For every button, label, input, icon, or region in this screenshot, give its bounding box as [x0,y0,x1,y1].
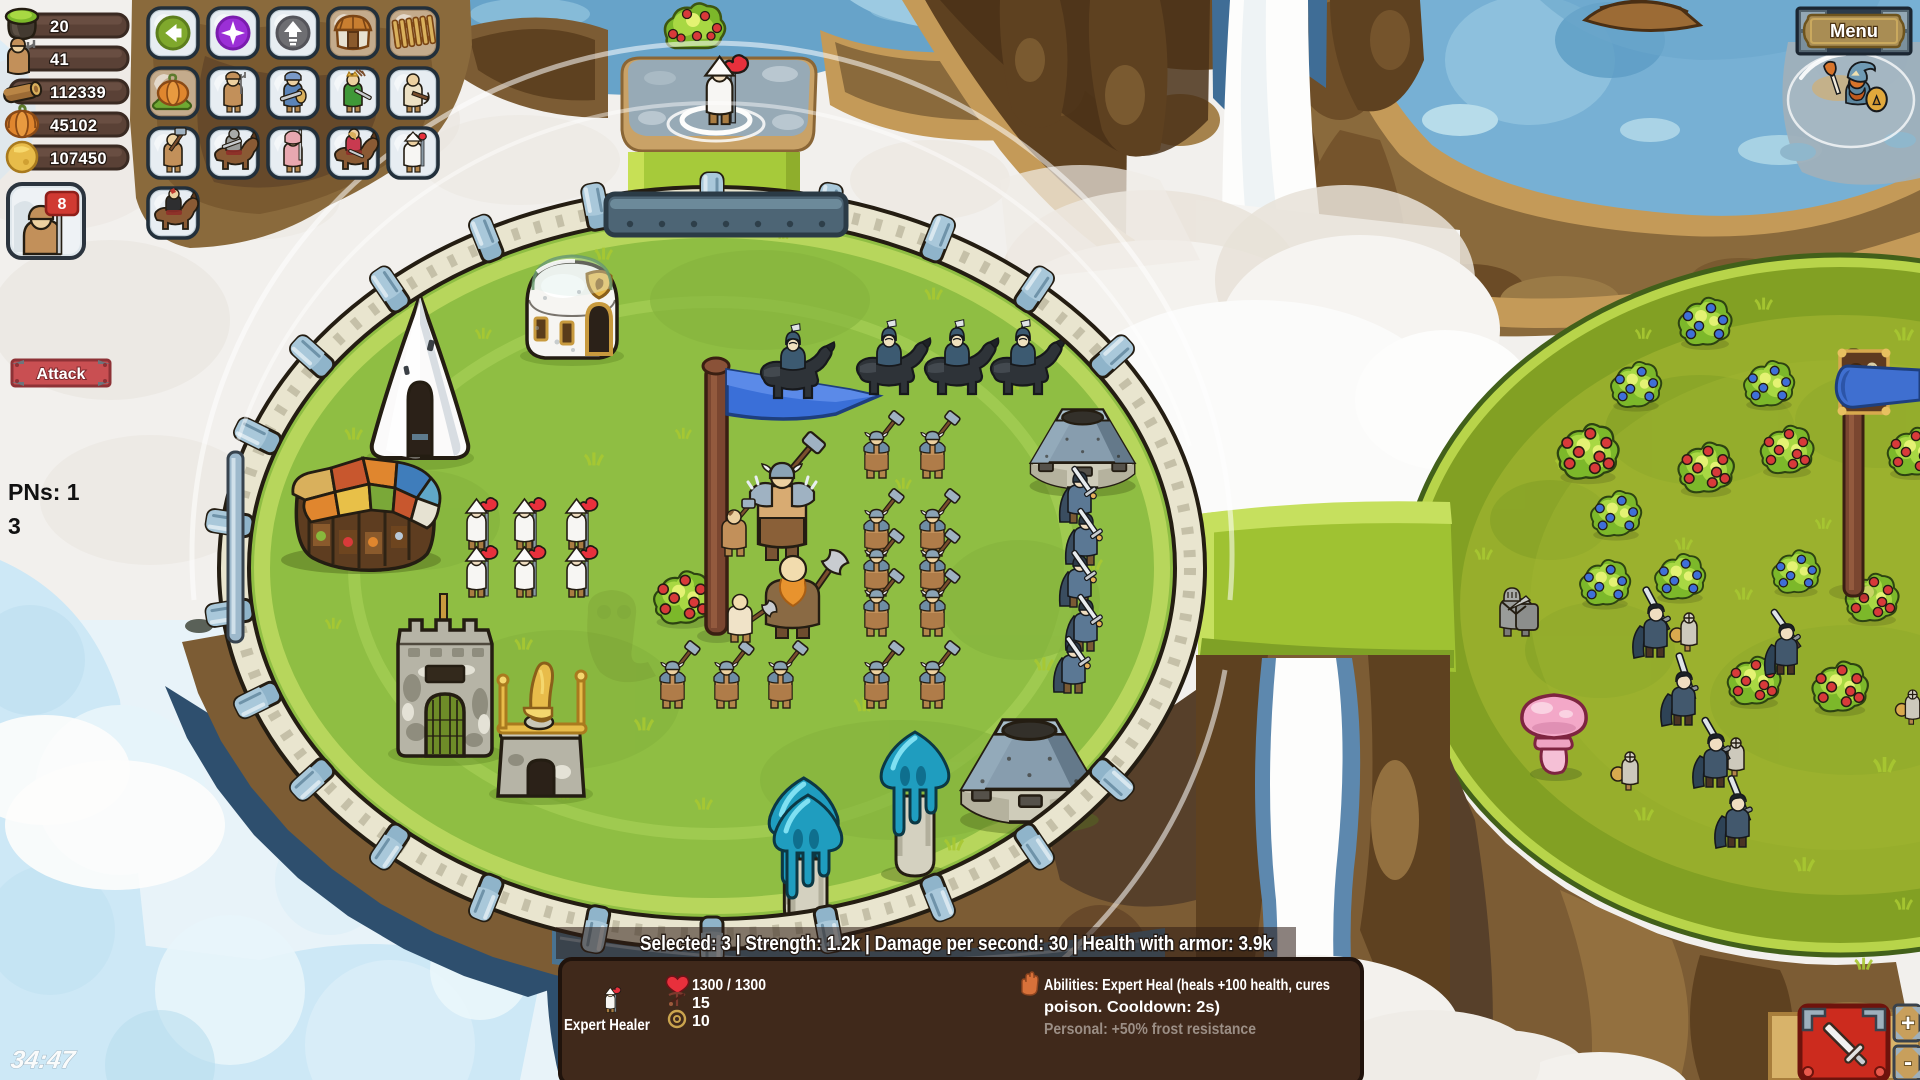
svg-text:Menu: Menu [1830,21,1878,41]
svg-text:Expert Healer: Expert Healer [564,1017,650,1034]
svg-text:+: + [1901,1010,1915,1037]
svg-text:Attack: Attack [37,366,86,383]
svg-text:8: 8 [58,196,67,213]
svg-text:34:47: 34:47 [9,1046,77,1074]
svg-text:15: 15 [692,995,710,1012]
svg-text:1300 / 1300: 1300 / 1300 [692,977,766,994]
svg-text:3: 3 [8,513,21,539]
svg-text:-: - [1904,1049,1912,1076]
svg-text:10: 10 [692,1013,710,1030]
svg-text:Personal: +50% frost resistanc: Personal: +50% frost resistance [1044,1021,1256,1038]
svg-text:PNs: 1: PNs: 1 [8,479,80,505]
svg-text:poison. Cooldown: 2s): poison. Cooldown: 2s) [1044,999,1220,1016]
svg-text:41: 41 [50,51,69,69]
svg-text:107450: 107450 [50,150,107,168]
svg-text:112339: 112339 [50,84,106,102]
svg-text:Abilities: Expert Heal (heals: Abilities: Expert Heal (heals +100 healt… [1044,977,1330,994]
svg-text:Selected: 3 | Strength: 1.2k: Selected: 3 | Strength: 1.2k | Damage pe… [640,933,1273,955]
svg-text:20: 20 [50,18,69,36]
svg-text:45102: 45102 [50,117,97,135]
